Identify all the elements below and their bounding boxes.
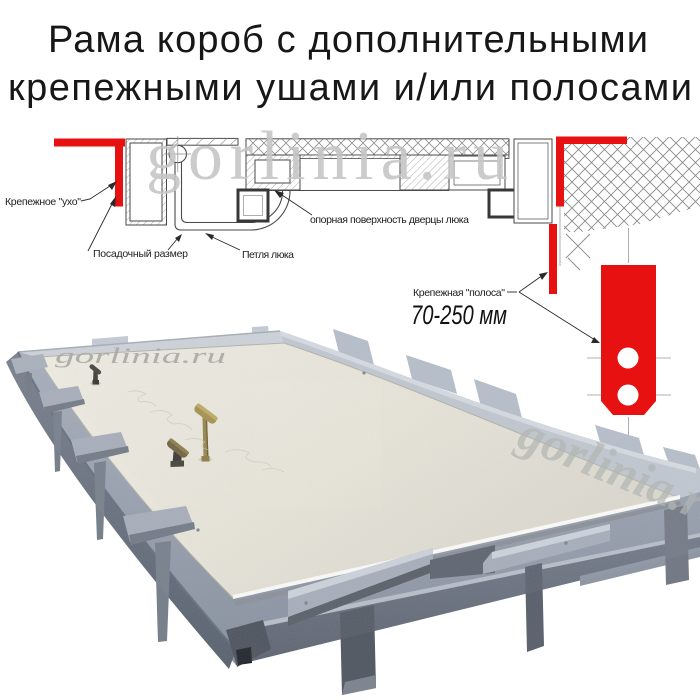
svg-text:Крепежная "полоса": Крепежная "полоса" [413,287,505,299]
svg-text:Петля люка: Петля люка [242,249,294,261]
svg-text:Посадочный размер: Посадочный размер [93,248,188,260]
svg-text:Рама короб с дополнительными: Рама короб с дополнительными [48,19,648,61]
svg-text:70-250 мм: 70-250 мм [411,300,507,330]
svg-text:опорная поверхность дверцы люк: опорная поверхность дверцы люка [310,214,469,226]
svg-text:крепежными ушами и/или полосам: крепежными ушами и/или полосами [8,67,692,109]
svg-text:gorlinia.ru: gorlinia.ru [55,344,226,368]
svg-text:gorlinia.ru: gorlinia.ru [146,118,508,195]
svg-text:Крепежное "ухо": Крепежное "ухо" [5,196,81,208]
